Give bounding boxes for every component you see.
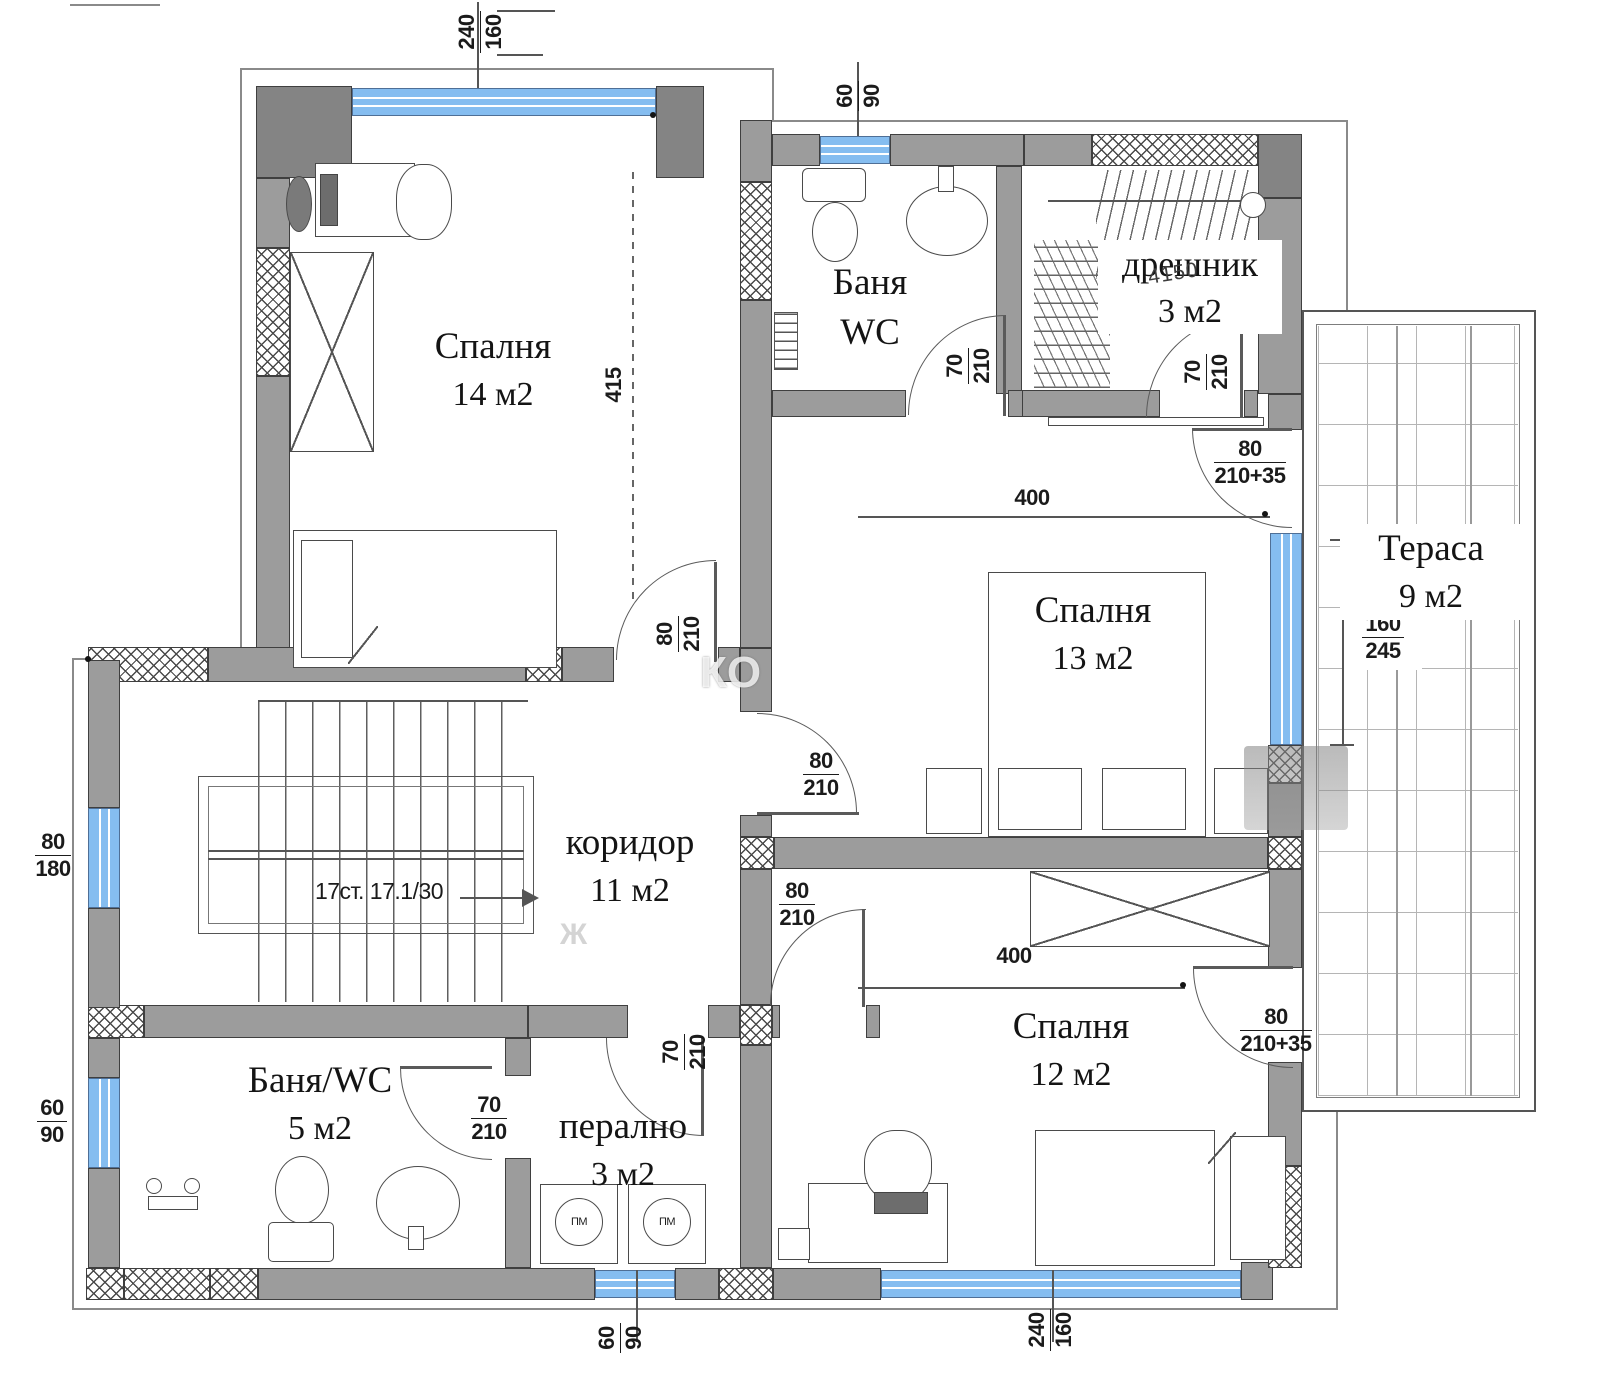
dim-line-400-bedroom12	[858, 987, 1185, 989]
wall-hatched	[740, 182, 772, 300]
wall	[740, 815, 772, 837]
tap-icon	[938, 166, 954, 192]
wall	[866, 1005, 880, 1038]
closet-circle-icon	[1240, 192, 1266, 218]
monitor-icon	[320, 174, 338, 226]
wall-corner	[1258, 134, 1302, 198]
toilet-icon	[275, 1156, 329, 1224]
speaker-icon	[286, 176, 312, 232]
wall	[740, 120, 772, 182]
wall	[1022, 390, 1160, 417]
side-table-icon	[778, 1228, 810, 1260]
floor-plan: 17ст. 17.1/30 ПМ ПМ	[0, 0, 1600, 1396]
toilet-tank-icon	[268, 1222, 334, 1262]
stairs-direction-line	[460, 897, 524, 899]
contour-line	[72, 658, 74, 1310]
door-leaf	[862, 909, 865, 1007]
shower-mixer-icon	[148, 1196, 198, 1210]
pillow-icon	[1102, 768, 1186, 830]
wall	[88, 908, 120, 1008]
dim-window-laundry: 6090	[588, 1308, 652, 1368]
dim-door-bath-bottom: 70210	[458, 1086, 520, 1150]
bed-fold-line	[1208, 1132, 1236, 1164]
room-label-laundry: перално3 м2	[538, 1102, 708, 1198]
wall	[740, 300, 772, 648]
dim-width-hall: 400	[1002, 482, 1062, 514]
wardrobe-icon	[290, 252, 374, 452]
wall-hatched	[210, 1268, 258, 1300]
shower-knob-icon	[146, 1178, 162, 1194]
dim-door-bedroom13: 80210	[792, 742, 850, 806]
window-terrace	[1270, 533, 1302, 745]
pillow-icon	[301, 540, 353, 658]
wall	[88, 1168, 120, 1268]
dim-door-bedroom12-terrace: 80210+35	[1224, 998, 1328, 1062]
wall	[774, 837, 1268, 869]
wall	[773, 1268, 881, 1300]
dim-door-closet: 70210	[1174, 342, 1238, 402]
room-label-bedroom13: Спалня13 м2	[1018, 586, 1168, 682]
terrace-grid-line	[1396, 326, 1398, 1096]
watermark: Ж	[560, 918, 587, 952]
contour-line	[240, 68, 242, 660]
wall	[772, 134, 820, 166]
wall-hatched	[1268, 837, 1302, 869]
window-bedroom14	[352, 88, 656, 116]
wall	[144, 1005, 528, 1038]
wall-hatched	[719, 1268, 773, 1300]
stairs-direction-arrow-icon	[522, 889, 539, 907]
dim-window-stairs: 80180	[22, 820, 84, 890]
dim-door-laundry: 70210	[652, 1022, 716, 1082]
wall-hatched	[1092, 134, 1258, 166]
wall	[656, 86, 704, 178]
radiator-icon	[774, 312, 798, 370]
dim-window-bath-top: 6090	[826, 66, 890, 126]
wall-hatched	[256, 248, 290, 376]
contour-line	[1336, 1112, 1338, 1310]
wall	[528, 1005, 628, 1038]
wall	[256, 178, 290, 248]
stairs-label: 17ст. 17.1/30	[290, 876, 468, 906]
window-stairs	[88, 808, 120, 908]
wall	[1268, 394, 1302, 430]
room-label-corridor: коридор11 м2	[548, 818, 712, 914]
dim-door-bath-top: 70210	[936, 336, 1000, 396]
wall	[890, 134, 1024, 166]
pillow-icon	[1230, 1136, 1286, 1260]
wall	[1244, 390, 1258, 417]
door-leaf	[1003, 316, 1006, 416]
wall	[88, 660, 120, 808]
wall	[772, 390, 906, 417]
dim-height-415: 415	[582, 355, 646, 415]
contour-line	[240, 68, 772, 70]
dim-dot	[650, 112, 656, 118]
contour-line	[72, 1308, 1338, 1310]
wall-hatched	[88, 1005, 144, 1038]
closet-rod	[1048, 200, 1260, 202]
wall	[505, 1038, 531, 1076]
pillow-icon	[998, 768, 1082, 830]
room-label-closet: дрешник3 м2	[1098, 240, 1282, 334]
room-label-bath-bottom: Баня/WC5 м2	[226, 1056, 414, 1152]
monitor-icon	[874, 1192, 928, 1214]
wall	[740, 1045, 772, 1268]
wall	[772, 1005, 780, 1038]
terrace-grid-line	[1470, 326, 1472, 1096]
dim-window-bedroom12: 240160	[1018, 1295, 1082, 1365]
dim-width-bedroom12: 400	[984, 940, 1044, 972]
washing-machine-drum-icon: ПМ	[555, 1198, 603, 1246]
room-label-bedroom14: Спалня14 м2	[418, 322, 568, 418]
dim-door-bedroom12: 80210	[768, 872, 826, 936]
nightstand-icon	[926, 768, 982, 834]
wall	[256, 376, 290, 648]
dim-line-400-hall	[858, 516, 1270, 518]
wall-hatched	[740, 1005, 772, 1045]
room-label-bath-top: БаняWC	[818, 258, 922, 358]
stairs-landing-line	[208, 850, 524, 852]
window-laundry	[595, 1270, 675, 1298]
wall-hatched	[86, 1268, 124, 1300]
dim-door-hall-terrace: 80210+35	[1198, 430, 1302, 494]
stairs-landing-line	[208, 858, 524, 860]
washing-machine-drum-icon: ПМ	[643, 1198, 691, 1246]
contour-line	[1346, 120, 1348, 312]
wall-hatched	[124, 1268, 210, 1300]
door-leaf	[757, 812, 859, 815]
toilet-icon	[812, 202, 858, 262]
wall	[88, 1038, 120, 1078]
dim-window-bath-left: 6090	[24, 1086, 80, 1156]
room-label-terrace: Тераса9 м2	[1340, 524, 1522, 620]
watermark: КО	[700, 648, 761, 698]
wall-hatched	[740, 837, 774, 869]
chair-icon	[396, 164, 452, 240]
wardrobe-icon	[1030, 871, 1270, 947]
contour-line	[772, 68, 774, 122]
toilet-tank-icon	[802, 168, 866, 202]
bed-fold-line	[348, 626, 378, 664]
window-bath-top	[820, 136, 890, 164]
wall	[675, 1268, 719, 1300]
contour-line	[70, 4, 160, 6]
tap-icon	[408, 1226, 424, 1250]
wall	[505, 1158, 531, 1268]
window-bath-left	[88, 1078, 120, 1168]
room-label-bedroom12: Спалня12 м2	[996, 1002, 1146, 1098]
bed-single-icon	[1035, 1130, 1215, 1266]
wall	[1024, 134, 1092, 166]
door-leaf	[714, 562, 717, 662]
door-leaf	[1193, 966, 1293, 969]
dim-dot	[1180, 982, 1186, 988]
wall	[562, 647, 614, 682]
sink-icon	[906, 186, 988, 256]
dim-dot	[1262, 511, 1268, 517]
window-bedroom12	[881, 1270, 1241, 1298]
closet-stand	[1048, 417, 1264, 426]
wall	[1268, 869, 1302, 968]
dim-dot	[85, 656, 91, 662]
watermark-blob	[1244, 746, 1348, 830]
shower-knob-icon	[184, 1178, 200, 1194]
terrace-tile-grid	[1318, 326, 1518, 1096]
wall	[258, 1268, 595, 1300]
dim-window-top: 240160	[448, 0, 512, 67]
